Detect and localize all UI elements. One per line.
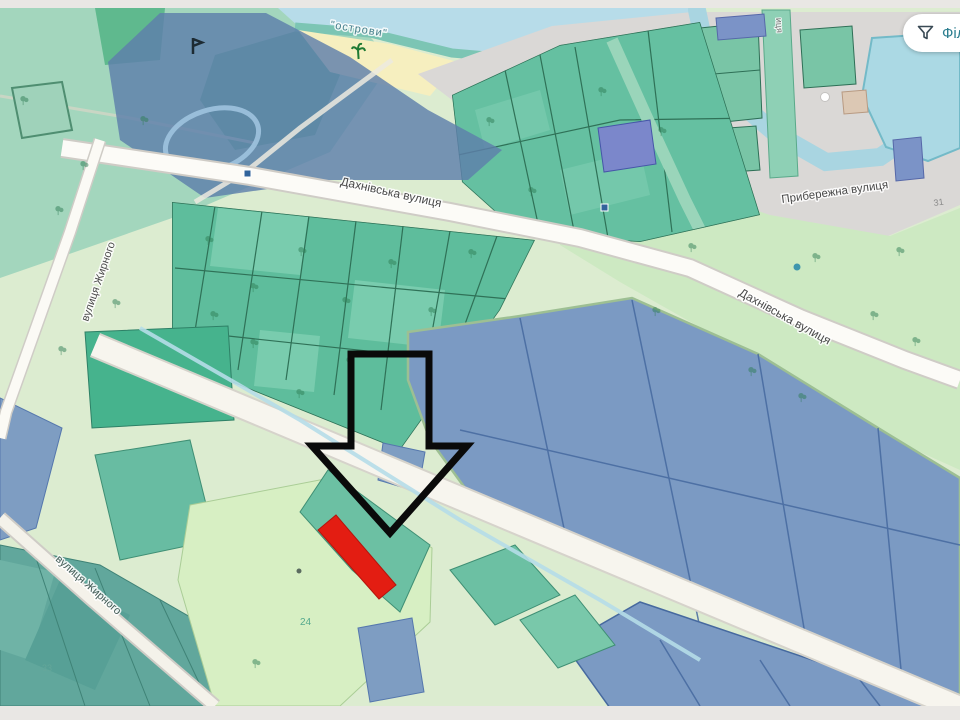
filter-button[interactable]: Філ (903, 14, 960, 52)
poi-icon (244, 170, 251, 177)
filter-button-label: Філ (942, 25, 960, 42)
map-canvas[interactable]: Дахнівська вулиця Дахнівська вулиця Приб… (0, 0, 960, 720)
building (842, 90, 868, 114)
building (716, 14, 766, 40)
building (893, 137, 924, 181)
parcel-label-33: 33 (42, 663, 52, 673)
poi-icon (601, 204, 608, 211)
house-label-31: 31 (933, 197, 944, 208)
parcel-label-24: 24 (300, 617, 312, 628)
poi-icon (821, 93, 830, 102)
funnel-icon (917, 25, 934, 41)
street-label-fragment: иця (774, 18, 785, 34)
map-app: Дахнівська вулиця Дахнівська вулиця Приб… (0, 0, 960, 720)
poi-icon (794, 264, 801, 271)
parcel-blue (598, 120, 656, 172)
